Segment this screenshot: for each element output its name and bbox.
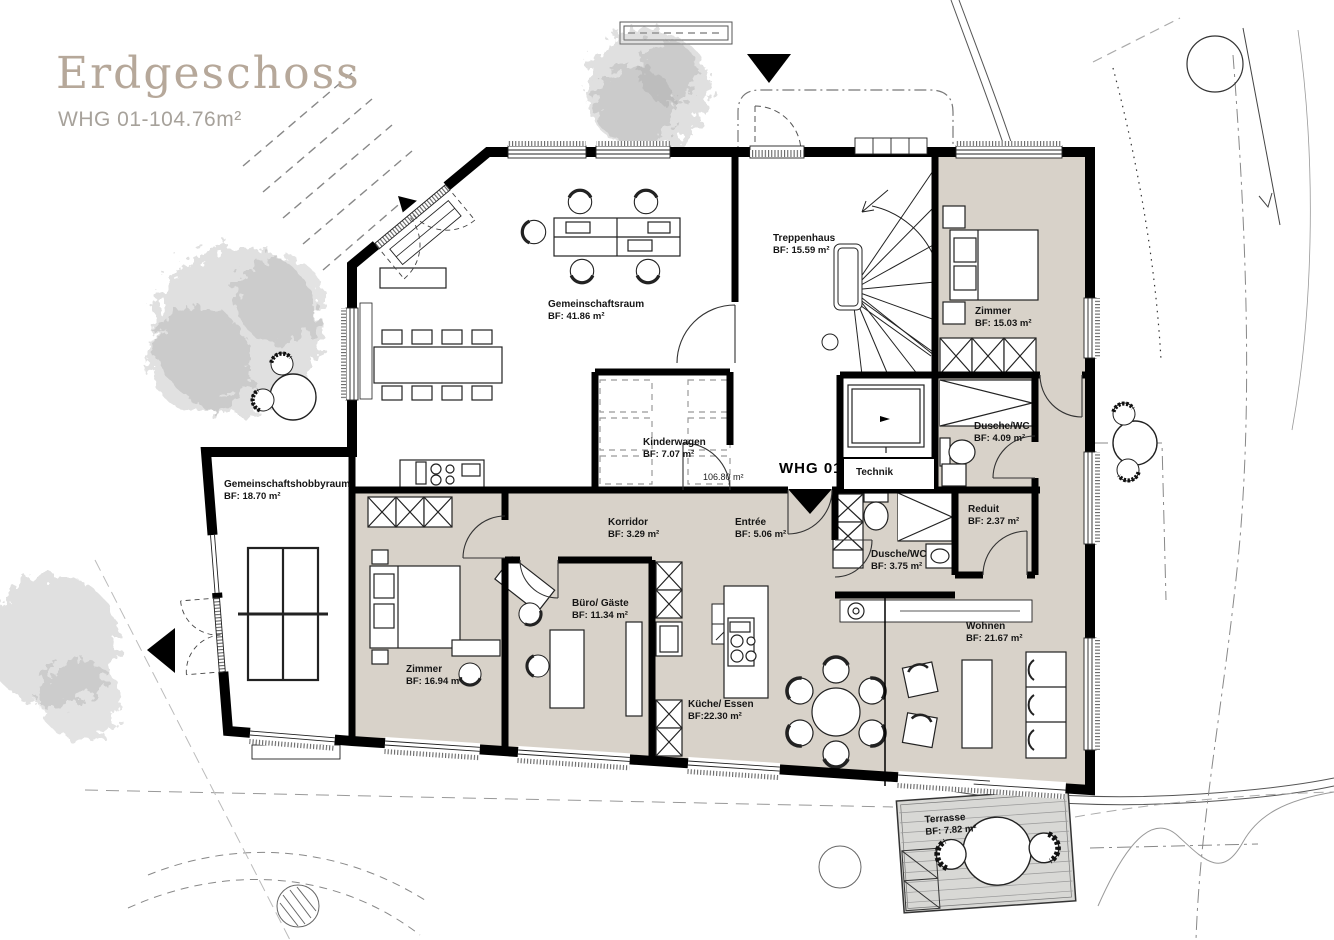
room-label-zimmer-top: Zimmer BF: 15.03 m² [975, 305, 1032, 330]
table-tennis [238, 548, 328, 680]
kitchen-island [724, 586, 768, 698]
window [1084, 452, 1100, 544]
cabinet [626, 622, 642, 716]
unit-marker-whg01: WHG 01 [779, 460, 843, 477]
technik-appliance [848, 385, 924, 453]
road-centerline [1196, 55, 1247, 940]
survey-arrow [1259, 193, 1272, 207]
desk [550, 630, 584, 708]
room-label-technik: Technik [856, 466, 893, 479]
wardrobe [368, 497, 452, 527]
plan-title: Erdgeschoss [56, 48, 361, 99]
entrance-arrow-icon [747, 54, 791, 83]
room-label-kinderwagen: Kinderwagen BF: 7.07 m² [643, 436, 706, 461]
room-label-terrasse: Terrasse BF: 7.82 m² [924, 810, 977, 839]
hatched-circle-icon [277, 885, 319, 927]
room-label-buero-gaeste: Büro/ Gäste BF: 11.34 m² [572, 597, 629, 622]
window [1084, 298, 1100, 358]
room-label-entree: Entrée BF: 5.06 m² [735, 516, 786, 541]
wardrobe [940, 338, 1036, 374]
desk [452, 640, 500, 656]
window [855, 138, 927, 154]
sideboard [840, 600, 1032, 622]
room-label-dusche-wc: Dusche/WC BF: 3.75 m² [871, 548, 927, 573]
armchair [902, 712, 937, 747]
room-label-korridor: Korridor BF: 3.29 m² [608, 516, 659, 541]
window [1084, 638, 1100, 750]
tv-board [962, 660, 992, 748]
entry-double-door [181, 597, 232, 674]
window-bench [360, 303, 372, 399]
room-label-gemeinschaftshobbyraum: Gemeinschaftshobbyraum BF: 18.70 m² [224, 478, 350, 503]
terrain-squiggle [1098, 792, 1334, 906]
floor-plan-page: Erdgeschoss WHG 01-104.76m² Gemeinschaft… [0, 0, 1334, 940]
dashed-arc [128, 879, 420, 935]
room-label-dusche-wc-top: Dusche/WC BF: 4.09 m² [974, 420, 1030, 445]
kitchenette [400, 460, 484, 488]
tree-icon [586, 28, 710, 152]
bed [370, 550, 460, 664]
boundary-dashdot [1090, 844, 1258, 848]
shower [898, 493, 952, 541]
entrance-arrow-icon [147, 628, 175, 673]
room-label-kueche-essen: Küche/ Essen BF:22.30 m² [688, 698, 754, 723]
dotted-curve [1113, 68, 1161, 360]
room-label-treppenhaus: Treppenhaus BF: 15.59 m² [773, 232, 835, 257]
washbasin [942, 464, 966, 486]
far-curve [1292, 30, 1310, 430]
dashed-arc [148, 852, 428, 902]
room-label-gemeinschaftsraum: Gemeinschaftsraum BF: 41.86 m² [548, 298, 644, 323]
entry-door-sill [750, 146, 804, 158]
circle-icon [819, 846, 861, 888]
site-plan-svg [0, 0, 1334, 940]
window [341, 308, 358, 400]
site-dash-line [85, 790, 893, 807]
total-area-note: 106.80 m² [703, 472, 744, 482]
toilet [940, 438, 975, 466]
plan-subtitle: WHG 01-104.76m² [58, 108, 242, 132]
tree-outline-icon [1187, 36, 1243, 92]
toilet [864, 493, 888, 530]
room-label-reduit: Reduit BF: 2.37 m² [968, 503, 1019, 528]
room-label-zimmer: Zimmer BF: 16.94 m² [406, 663, 463, 688]
entry-door-dashed [755, 106, 801, 152]
room-label-wohnen: Wohnen BF: 21.67 m² [966, 620, 1023, 645]
armchair [902, 662, 938, 698]
building [181, 138, 1100, 799]
sofa [1026, 652, 1066, 758]
entry-bench [380, 268, 446, 288]
terrace [896, 789, 1075, 913]
gray-dash [1093, 18, 1180, 62]
window [508, 141, 586, 158]
outdoor-table-set [1111, 401, 1157, 482]
survey-line [1243, 28, 1280, 225]
tree-icon [0, 574, 120, 740]
window [956, 141, 1062, 158]
washbasin [926, 544, 954, 568]
window [596, 141, 670, 158]
